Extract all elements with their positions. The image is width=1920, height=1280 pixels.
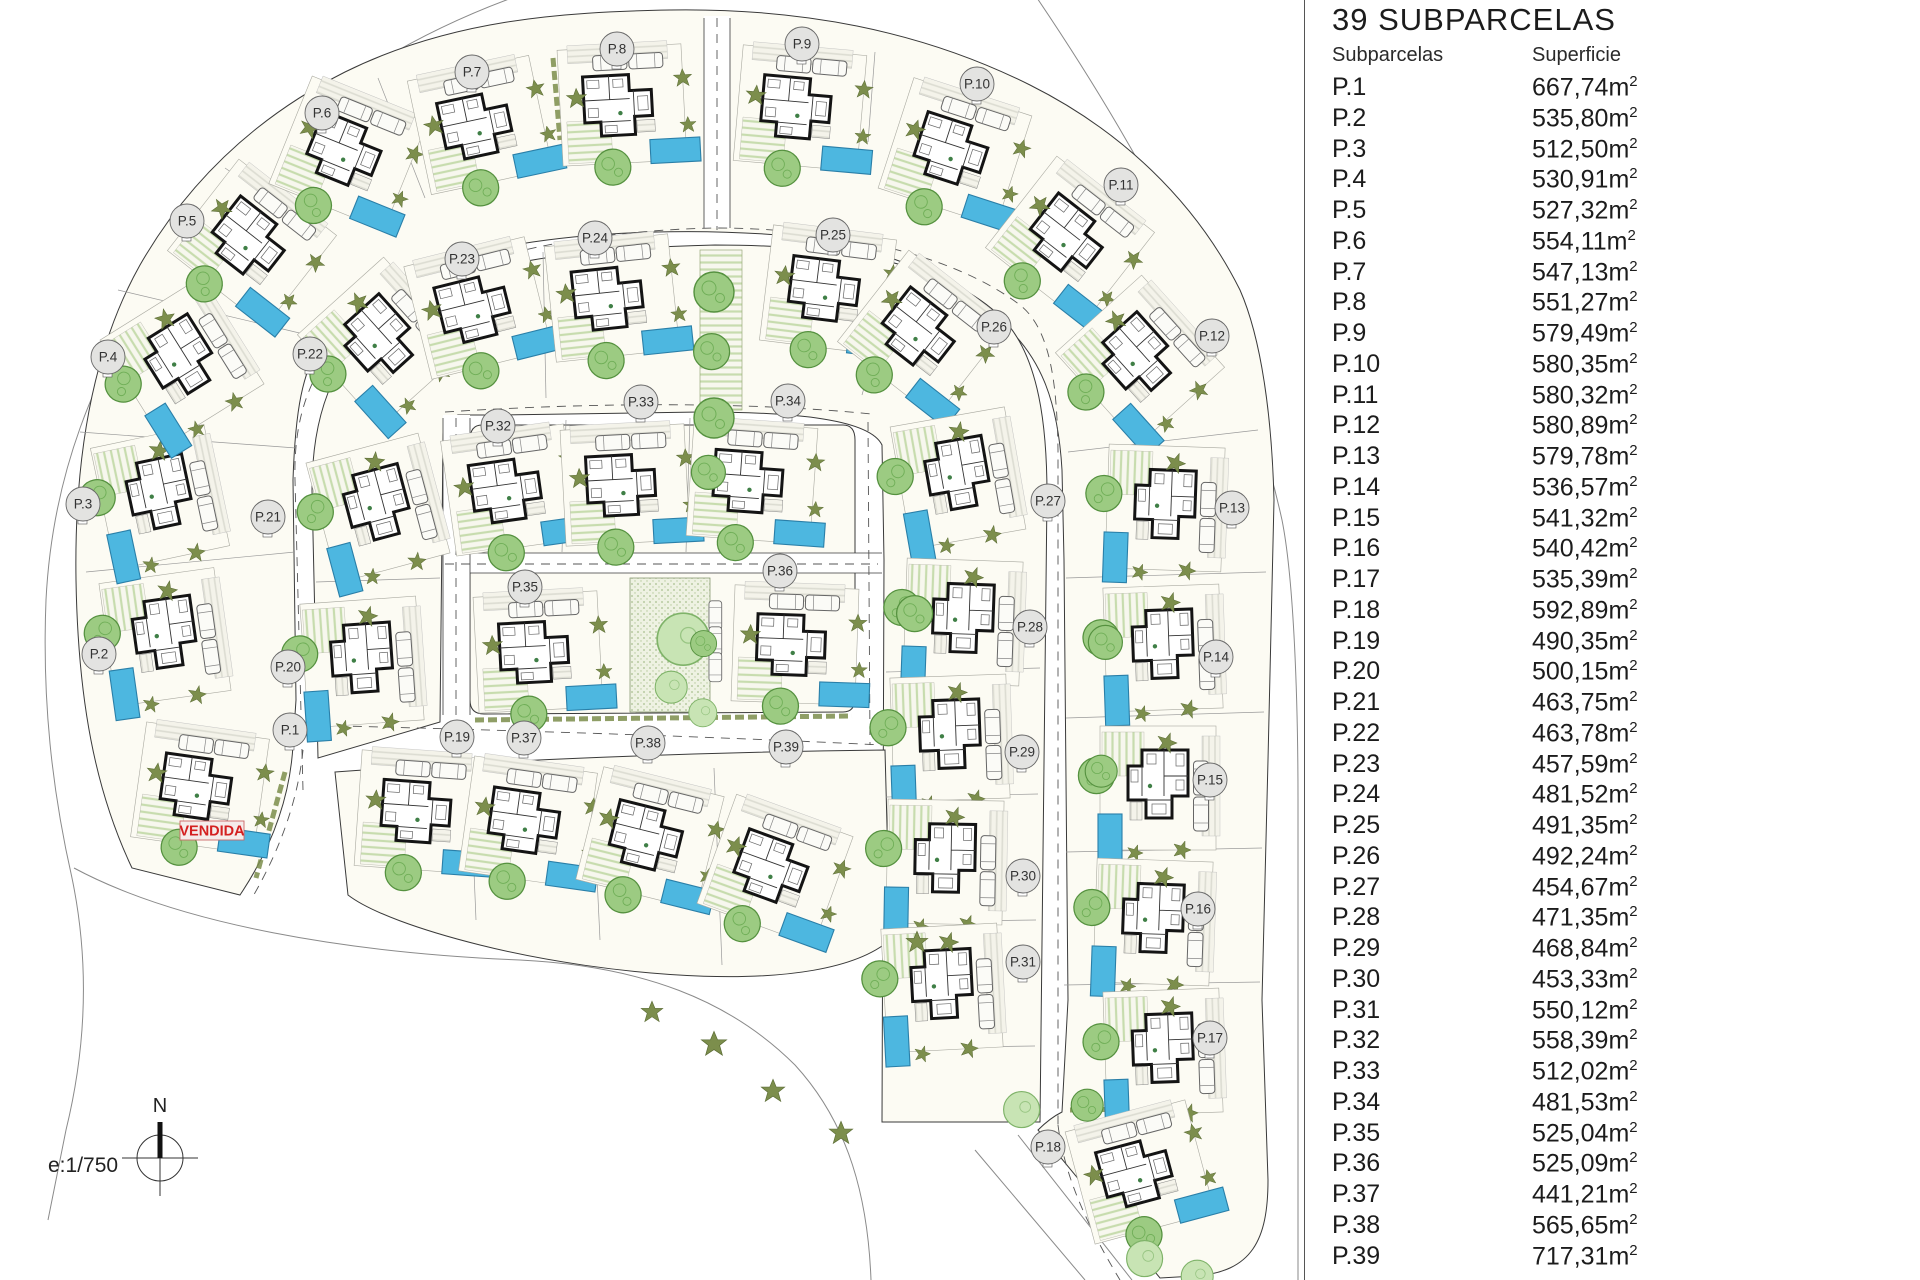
table-row: P.20500,15m2 xyxy=(1332,656,1892,687)
tree-icon xyxy=(1085,475,1122,512)
plot-label: P.37 xyxy=(507,721,541,758)
table-row: P.13579,78m2 xyxy=(1332,441,1892,472)
svg-text:P.26: P.26 xyxy=(981,320,1007,335)
svg-text:P.16: P.16 xyxy=(1185,902,1211,917)
car-icon xyxy=(1194,797,1209,831)
north-arrow: N xyxy=(122,1095,198,1196)
table-row: P.38565,65m2 xyxy=(1332,1210,1892,1241)
plot-area: 492,24m2 xyxy=(1532,842,1638,871)
pool xyxy=(819,682,870,708)
svg-text:P.12: P.12 xyxy=(1199,329,1225,344)
pool xyxy=(1090,946,1116,997)
plot-id: P.17 xyxy=(1332,565,1380,594)
site-plan-sheet: P.1P.2P.3P.4P.5P.6P.7P.8P.9P.10P.11P.12P… xyxy=(0,0,1920,1280)
plot-id: P.20 xyxy=(1332,657,1380,686)
tree-icon xyxy=(865,830,902,867)
plot-id: P.32 xyxy=(1332,1026,1380,1055)
table-row: P.24481,52m2 xyxy=(1332,779,1892,810)
tree-icon xyxy=(1082,1023,1119,1060)
svg-text:P.13: P.13 xyxy=(1219,501,1245,516)
tree-icon xyxy=(689,699,717,727)
svg-text:P.28: P.28 xyxy=(1017,620,1043,635)
table-row: P.18592,89m2 xyxy=(1332,595,1892,626)
plot-area: 481,53m2 xyxy=(1532,1088,1638,1117)
plot-area: 512,50m2 xyxy=(1532,135,1638,164)
svg-text:P.35: P.35 xyxy=(512,580,538,595)
svg-text:P.14: P.14 xyxy=(1203,650,1230,665)
plot-area: 535,80m2 xyxy=(1532,104,1638,133)
plot-area: 530,91m2 xyxy=(1532,165,1638,194)
table-row: P.4530,91m2 xyxy=(1332,164,1892,195)
tree-icon xyxy=(762,688,799,725)
table-row: P.17535,39m2 xyxy=(1332,564,1892,595)
tree-icon xyxy=(691,455,725,489)
car-icon xyxy=(980,872,996,906)
plot-area: 500,15m2 xyxy=(1532,657,1638,686)
plot-area: 547,13m2 xyxy=(1532,258,1638,287)
table-row: P.39717,31m2 xyxy=(1332,1241,1892,1272)
car-icon xyxy=(763,432,798,449)
tree-icon xyxy=(694,398,734,438)
car-icon xyxy=(631,432,666,449)
table-row: P.8551,27m2 xyxy=(1332,287,1892,318)
svg-text:P.2: P.2 xyxy=(90,647,109,662)
plot-id: P.11 xyxy=(1332,381,1378,410)
plot-id: P.39 xyxy=(1332,1242,1380,1271)
tree-icon xyxy=(1073,889,1110,926)
plot-id: P.6 xyxy=(1332,227,1366,256)
plot-id: P.34 xyxy=(1332,1088,1380,1117)
svg-text:P.24: P.24 xyxy=(582,231,609,246)
plot-area: 541,32m2 xyxy=(1532,504,1638,533)
svg-text:P.5: P.5 xyxy=(178,214,197,229)
table-row: P.23457,59m2 xyxy=(1332,749,1892,780)
plot-area: 471,35m2 xyxy=(1532,903,1638,932)
plot-area: 565,65m2 xyxy=(1532,1211,1638,1240)
pool xyxy=(642,326,694,355)
table-row: P.31550,12m2 xyxy=(1332,995,1892,1026)
table-row: P.16540,42m2 xyxy=(1332,533,1892,564)
plot-label: P.33 xyxy=(624,385,658,422)
pool xyxy=(883,1016,910,1067)
car-icon xyxy=(1187,932,1203,967)
car-icon xyxy=(544,599,579,616)
col-superficie: Superficie xyxy=(1532,44,1621,67)
plot-id: P.37 xyxy=(1332,1180,1380,1209)
tree-icon xyxy=(1071,1089,1103,1121)
pool xyxy=(304,690,331,742)
plot-area: 457,59m2 xyxy=(1532,750,1638,779)
plot-area: 535,39m2 xyxy=(1532,565,1638,594)
svg-text:N: N xyxy=(153,1095,167,1117)
table-row: P.5527,32m2 xyxy=(1332,195,1892,226)
svg-text:P.37: P.37 xyxy=(511,731,537,746)
plot-area: 717,31m2 xyxy=(1532,1242,1638,1271)
pool xyxy=(1102,532,1128,583)
svg-text:P.8: P.8 xyxy=(608,42,627,57)
car-icon xyxy=(709,653,722,682)
tree-icon xyxy=(897,596,933,632)
table-row: P.37441,21m2 xyxy=(1332,1179,1892,1210)
plot-id: P.8 xyxy=(1332,288,1366,317)
pool xyxy=(566,684,617,711)
table-row: P.21463,75m2 xyxy=(1332,687,1892,718)
car-icon xyxy=(985,709,1001,744)
tree-icon xyxy=(869,709,906,746)
plot-id: P.15 xyxy=(1332,504,1380,533)
svg-text:P.15: P.15 xyxy=(1197,773,1223,788)
plot-id: P.13 xyxy=(1332,442,1380,471)
tree-icon xyxy=(1127,1241,1163,1277)
plot-id: P.9 xyxy=(1332,319,1366,348)
pool xyxy=(650,137,701,164)
plot-id: P.24 xyxy=(1332,780,1380,809)
svg-text:P.4: P.4 xyxy=(99,350,118,365)
subparcelas-panel: 39 SUBPARCELAS Subparcelas Superficie P.… xyxy=(1305,0,1920,1280)
car-icon xyxy=(709,601,722,630)
plot-area: 536,57m2 xyxy=(1532,473,1638,502)
svg-text:P.19: P.19 xyxy=(444,730,470,745)
table-row: P.2535,80m2 xyxy=(1332,103,1892,134)
car-icon xyxy=(396,760,431,777)
car-icon xyxy=(398,667,415,702)
vendida-badge: VENDIDA xyxy=(179,821,245,840)
panel-title: 39 SUBPARCELAS xyxy=(1332,2,1616,38)
svg-text:P.17: P.17 xyxy=(1197,1031,1223,1046)
svg-text:P.36: P.36 xyxy=(767,564,793,579)
svg-text:P.18: P.18 xyxy=(1035,1140,1061,1155)
table-row: P.36525,09m2 xyxy=(1332,1148,1892,1179)
plot-area: 592,89m2 xyxy=(1532,596,1638,625)
plot-id: P.5 xyxy=(1332,196,1366,225)
tree-icon xyxy=(694,334,730,370)
table-row: P.15541,32m2 xyxy=(1332,503,1892,534)
svg-text:P.32: P.32 xyxy=(485,419,511,434)
plot-area: 579,49m2 xyxy=(1532,319,1638,348)
car-icon xyxy=(997,632,1013,667)
plot-area: 527,32m2 xyxy=(1532,196,1638,225)
table-row: P.30453,33m2 xyxy=(1332,964,1892,995)
plot-id: P.2 xyxy=(1332,104,1366,133)
table-row: P.12580,89m2 xyxy=(1332,410,1892,441)
table-row: P.19490,35m2 xyxy=(1332,626,1892,657)
bush-icon xyxy=(701,1031,726,1055)
tree-icon xyxy=(1085,755,1117,787)
svg-text:P.7: P.7 xyxy=(463,65,482,80)
bush-icon xyxy=(641,1001,663,1021)
svg-text:P.20: P.20 xyxy=(275,660,301,675)
table-row: P.35525,04m2 xyxy=(1332,1118,1892,1149)
plot-area: 558,39m2 xyxy=(1532,1026,1638,1055)
plot-area: 441,21m2 xyxy=(1532,1180,1638,1209)
plot-area: 525,04m2 xyxy=(1532,1119,1638,1148)
car-icon xyxy=(396,632,413,667)
table-row: P.27454,67m2 xyxy=(1332,872,1892,903)
svg-text:P.27: P.27 xyxy=(1035,494,1061,509)
bush-icon xyxy=(829,1121,852,1143)
car-icon xyxy=(978,994,995,1029)
plot-id: P.25 xyxy=(1332,811,1380,840)
plot-id: P.7 xyxy=(1332,258,1366,287)
plot-area: 525,09m2 xyxy=(1532,1149,1638,1178)
plot-area: 580,89m2 xyxy=(1532,411,1638,440)
svg-text:P.34: P.34 xyxy=(775,394,802,409)
plot-area: 490,35m2 xyxy=(1532,627,1638,656)
tree-icon xyxy=(1004,1092,1040,1128)
plot-id: P.26 xyxy=(1332,842,1380,871)
plot-area: 453,33m2 xyxy=(1532,965,1638,994)
plot-id: P.12 xyxy=(1332,411,1380,440)
svg-text:P.3: P.3 xyxy=(74,497,93,512)
car-icon xyxy=(616,243,651,261)
table-row: P.34481,53m2 xyxy=(1332,1087,1892,1118)
car-icon xyxy=(1199,518,1215,553)
plot-area: 580,32m2 xyxy=(1532,381,1638,410)
svg-text:P.23: P.23 xyxy=(449,252,475,267)
plot-area: 454,67m2 xyxy=(1532,873,1638,902)
pool xyxy=(821,146,873,174)
villa-parcel xyxy=(859,923,1008,1068)
plot-area: 579,78m2 xyxy=(1532,442,1638,471)
pool xyxy=(774,520,826,547)
table-row: P.1667,74m2 xyxy=(1332,72,1892,103)
car-icon xyxy=(628,52,663,69)
tree-icon xyxy=(1088,625,1122,659)
svg-text:P.10: P.10 xyxy=(964,77,990,92)
table-row: P.3512,50m2 xyxy=(1332,134,1892,165)
plot-id: P.28 xyxy=(1332,903,1380,932)
plot-id: P.4 xyxy=(1332,165,1366,194)
car-icon xyxy=(986,745,1002,780)
car-icon xyxy=(1200,482,1216,517)
svg-text:P.29: P.29 xyxy=(1009,745,1035,760)
svg-text:P.9: P.9 xyxy=(793,37,812,52)
table-row: P.10580,35m2 xyxy=(1332,349,1892,380)
svg-text:P.21: P.21 xyxy=(255,510,281,525)
svg-text:P.39: P.39 xyxy=(773,740,799,755)
table-row: P.14536,57m2 xyxy=(1332,472,1892,503)
svg-text:P.30: P.30 xyxy=(1010,869,1036,884)
table-row: P.25491,35m2 xyxy=(1332,810,1892,841)
car-icon xyxy=(980,836,996,870)
plot-id: P.19 xyxy=(1332,627,1380,656)
tree-icon xyxy=(694,272,734,312)
svg-text:P.38: P.38 xyxy=(635,736,661,751)
car-icon xyxy=(805,595,840,611)
tree-icon xyxy=(655,671,687,703)
scale-label: e:1/750 xyxy=(48,1154,118,1177)
plot-area: 551,27m2 xyxy=(1532,288,1638,317)
svg-text:P.31: P.31 xyxy=(1010,955,1036,970)
table-row: P.26492,24m2 xyxy=(1332,841,1892,872)
plot-id: P.30 xyxy=(1332,965,1380,994)
svg-text:P.1: P.1 xyxy=(281,723,300,738)
car-icon xyxy=(595,434,630,451)
plot-area: 540,42m2 xyxy=(1532,534,1638,563)
table-row: P.29468,84m2 xyxy=(1332,933,1892,964)
car-icon xyxy=(431,762,466,779)
plot-id: P.29 xyxy=(1332,934,1380,963)
plot-id: P.18 xyxy=(1332,596,1380,625)
car-icon xyxy=(998,596,1014,631)
table-row: P.11580,32m2 xyxy=(1332,380,1892,411)
plot-id: P.36 xyxy=(1332,1149,1380,1178)
plot-id: P.22 xyxy=(1332,719,1380,748)
plot-area: 550,12m2 xyxy=(1532,996,1638,1025)
table-row: P.22463,78m2 xyxy=(1332,718,1892,749)
plot-area: 554,11m2 xyxy=(1532,227,1636,256)
plot-id: P.21 xyxy=(1332,688,1380,717)
plot-id: P.3 xyxy=(1332,135,1366,164)
table-header: Subparcelas Superficie xyxy=(1332,44,1892,67)
svg-text:P.33: P.33 xyxy=(628,395,654,410)
plot-area: 580,35m2 xyxy=(1532,350,1638,379)
table-row: P.6554,11m2 xyxy=(1332,226,1892,257)
plot-area: 468,84m2 xyxy=(1532,934,1638,963)
plot-area: 463,75m2 xyxy=(1532,688,1638,717)
svg-text:P.6: P.6 xyxy=(313,106,332,121)
site-plan: P.1P.2P.3P.4P.5P.6P.7P.8P.9P.10P.11P.12P… xyxy=(0,0,1305,1280)
plot-area: 491,35m2 xyxy=(1532,811,1638,840)
car-icon xyxy=(728,430,763,447)
bush-icon xyxy=(761,1079,784,1101)
svg-text:P.22: P.22 xyxy=(297,347,323,362)
pool xyxy=(1098,814,1122,864)
car-icon xyxy=(976,958,993,993)
plot-id: P.16 xyxy=(1332,534,1380,563)
table-rows: P.1667,74m2P.2535,80m2P.3512,50m2P.4530,… xyxy=(1332,72,1892,1271)
plot-area: 463,78m2 xyxy=(1532,719,1638,748)
plot-id: P.1 xyxy=(1332,73,1366,102)
plot-area: 512,02m2 xyxy=(1532,1057,1638,1086)
tree-icon xyxy=(691,631,717,657)
svg-text:P.25: P.25 xyxy=(820,228,846,243)
plot-area: 667,74m2 xyxy=(1532,73,1638,102)
plot-id: P.31 xyxy=(1332,996,1380,1025)
plot-id: P.38 xyxy=(1332,1211,1380,1240)
table-row: P.32558,39m2 xyxy=(1332,1025,1892,1056)
plot-id: P.33 xyxy=(1332,1057,1380,1086)
table-row: P.33512,02m2 xyxy=(1332,1056,1892,1087)
car-icon xyxy=(812,58,847,76)
table-row: P.9579,49m2 xyxy=(1332,318,1892,349)
plot-area: 481,52m2 xyxy=(1532,780,1638,809)
plot-id: P.27 xyxy=(1332,873,1380,902)
car-icon xyxy=(1199,1059,1215,1094)
car-icon xyxy=(769,594,804,610)
plot-id: P.23 xyxy=(1332,750,1380,779)
plot-id: P.10 xyxy=(1332,350,1380,379)
svg-text:P.11: P.11 xyxy=(1108,178,1133,193)
site-plan-drawing: P.1P.2P.3P.4P.5P.6P.7P.8P.9P.10P.11P.12P… xyxy=(0,0,1305,1280)
plot-id: P.14 xyxy=(1332,473,1380,502)
plot-label: P.18 xyxy=(1031,1130,1065,1167)
plot-id: P.35 xyxy=(1332,1119,1380,1148)
table-row: P.7547,13m2 xyxy=(1332,257,1892,288)
pool xyxy=(1104,675,1130,726)
svg-text:VENDIDA: VENDIDA xyxy=(179,824,245,840)
table-row: P.28471,35m2 xyxy=(1332,902,1892,933)
col-subparcelas: Subparcelas xyxy=(1332,44,1443,66)
